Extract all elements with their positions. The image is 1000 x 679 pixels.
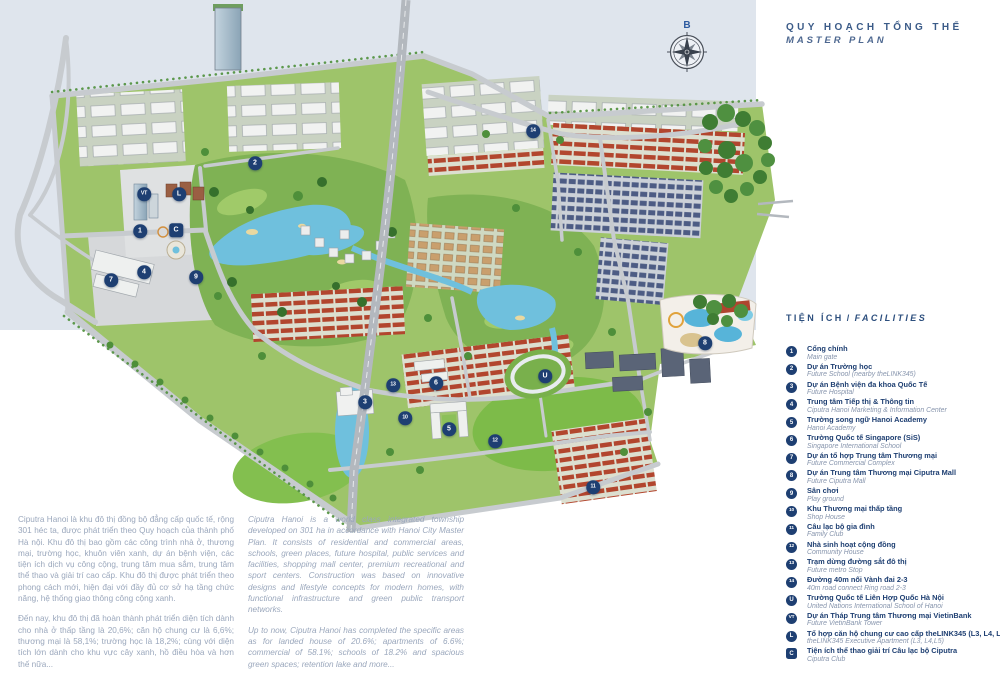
map-marker-13: 13 (386, 378, 400, 392)
about-en-paragraph-2: Up to now, Ciputra Hanoi has completed t… (248, 625, 464, 670)
map-marker-8: 8 (698, 336, 712, 350)
about-en: Ciputra Hanoi is a world class integrate… (248, 514, 464, 679)
map-marker-L: L (172, 187, 186, 201)
map-marker-4: 4 (137, 265, 151, 279)
map-marker-U: U (538, 369, 552, 383)
about-vi-paragraph-1: Ciputra Hanoi là khu đô thị đồng bộ đẳng… (18, 514, 234, 604)
map-marker-6: 6 (429, 376, 443, 390)
about-vi-paragraph-2: Đến nay, khu đô thị đã hoàn thành phát t… (18, 613, 234, 669)
map-marker-11: 11 (586, 480, 600, 494)
about-section: Ciputra Hanoi là khu đô thị đồng bộ đẳng… (18, 514, 470, 679)
map-marker-12: 12 (488, 434, 502, 448)
map-marker-C: C (169, 223, 183, 237)
map-marker-3: 3 (358, 395, 372, 409)
map-marker-1: 1 (133, 224, 147, 238)
map-marker-9: 9 (189, 270, 203, 284)
map-marker-7: 7 (104, 273, 118, 287)
map-marker-VT: VT (137, 187, 151, 201)
about-en-paragraph-1: Ciputra Hanoi is a world class integrate… (248, 514, 464, 616)
map-marker-5: 5 (442, 422, 456, 436)
map-marker-14: 14 (526, 124, 540, 138)
about-vi: Ciputra Hanoi là khu đô thị đồng bộ đẳng… (18, 514, 234, 679)
map-marker-2: 2 (248, 156, 262, 170)
map-marker-10: 10 (398, 411, 412, 425)
